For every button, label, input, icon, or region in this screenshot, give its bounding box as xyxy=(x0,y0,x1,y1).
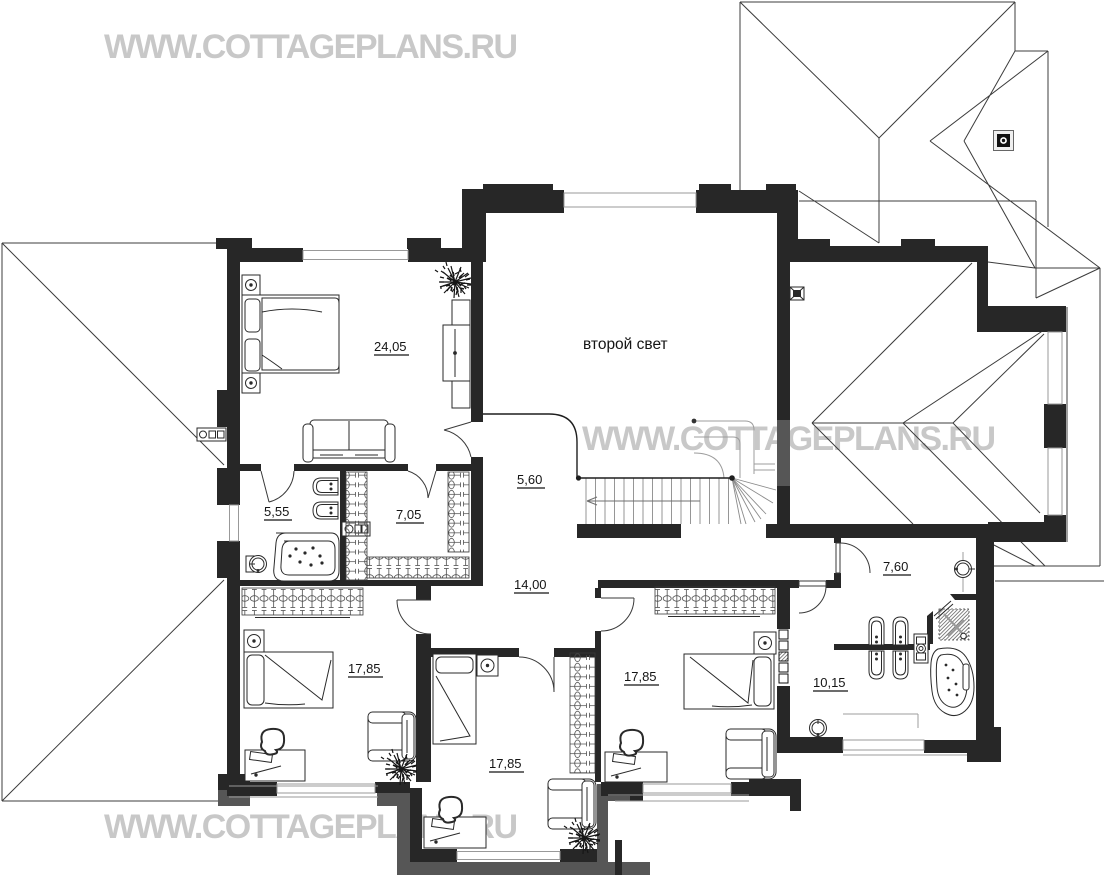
svg-text:7,60: 7,60 xyxy=(883,559,908,574)
svg-text:5,60: 5,60 xyxy=(517,472,542,487)
svg-text:17,85: 17,85 xyxy=(489,756,522,771)
svg-text:24,05: 24,05 xyxy=(374,339,407,354)
svg-text:WWW.COTTAGEPLANS.RU: WWW.COTTAGEPLANS.RU xyxy=(104,28,518,66)
svg-text:10,15: 10,15 xyxy=(813,675,846,690)
svg-text:второй свет: второй свет xyxy=(583,336,668,353)
svg-text:17,85: 17,85 xyxy=(624,669,657,684)
svg-text:17,85: 17,85 xyxy=(348,661,381,676)
svg-text:5,55: 5,55 xyxy=(264,504,289,519)
svg-text:14,00: 14,00 xyxy=(514,577,547,592)
svg-text:7,05: 7,05 xyxy=(396,507,421,522)
